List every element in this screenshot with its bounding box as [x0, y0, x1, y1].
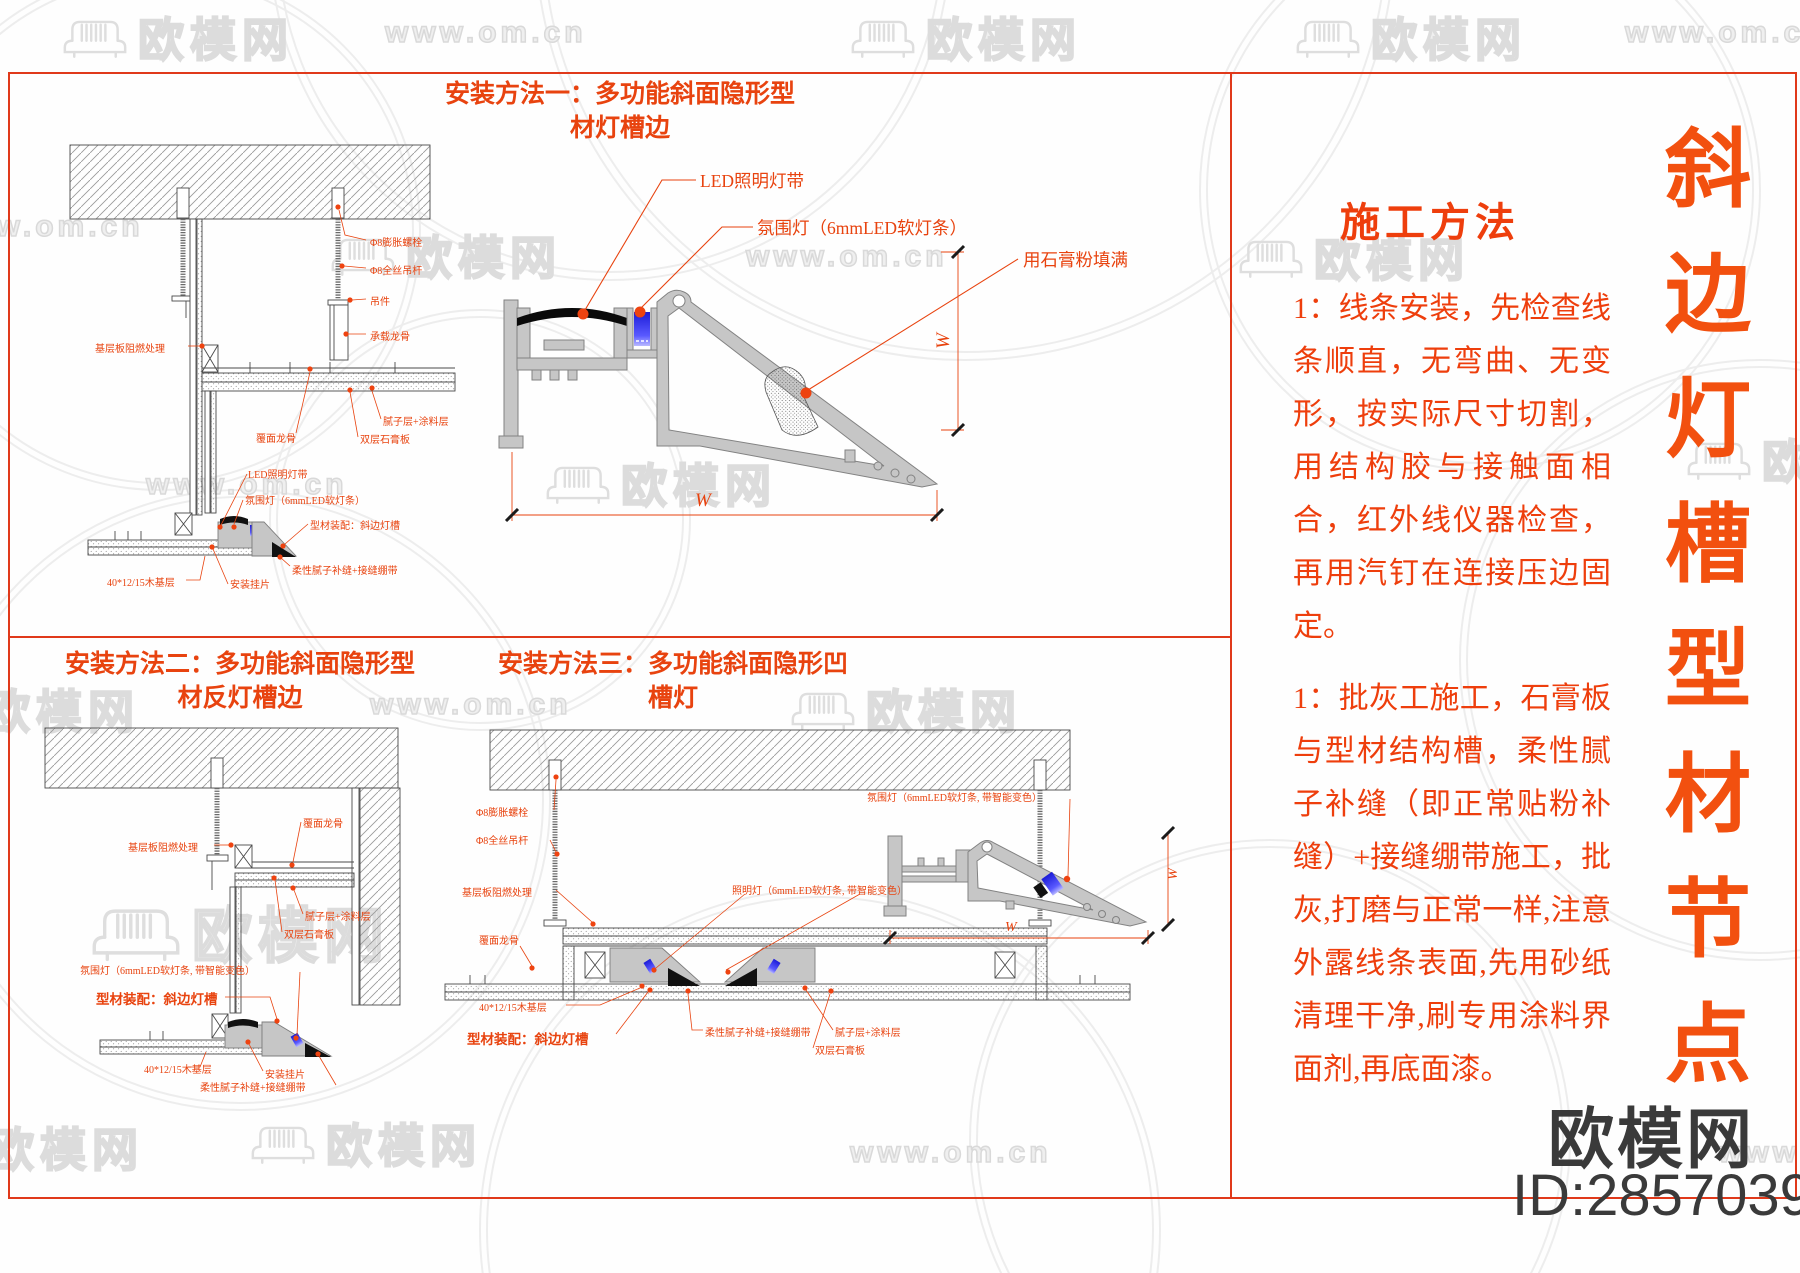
- construction-step-1: 1：线条安装，先检查线条顺直，无弯曲、无变形，按实际尺寸切割，用结构胶与接触面相…: [1293, 282, 1611, 653]
- drawing-sheet: 欧模网 www.om.cn 欧模网 欧模网 www.om.cn www.om.c…: [0, 0, 1800, 1273]
- callout-ambient-light: 氛围灯（6mmLED软灯条）: [757, 215, 967, 240]
- detail-label: 氛围灯（6mmLED软灯条, 带智能变色）: [867, 789, 1042, 804]
- model-id: ID:2857039: [1512, 1162, 1800, 1229]
- detail-label: 氛围灯（6mmLED软灯条）: [245, 492, 365, 507]
- detail-label: 覆面龙骨: [303, 815, 343, 830]
- method2-title-line1: 安装方法二：多功能斜面隐形型: [40, 648, 440, 682]
- detail-label: Φ8全丝吊杆: [370, 262, 422, 277]
- detail-label: 覆面龙骨: [256, 430, 296, 445]
- detail-label: 柔性腻子补缝+接缝绷带: [292, 562, 398, 577]
- profile-assembly-label: 型材装配：斜边灯槽: [96, 988, 218, 1008]
- detail-label: 安装挂片: [230, 576, 270, 591]
- method1-profile-section: [499, 290, 937, 487]
- detail-label: Φ8全丝吊杆: [476, 832, 528, 847]
- dimension-w-horizontal: W: [1005, 920, 1017, 936]
- detail-label: LED照明灯带: [248, 466, 307, 481]
- method3-title-line2: 槽灯: [473, 682, 873, 716]
- detail-label: 吊件: [370, 293, 390, 308]
- detail-label: 型材装配：斜边灯槽: [310, 517, 400, 532]
- detail-label: 腻子层+涂料层: [305, 908, 371, 923]
- detail-label: 腻子层+涂料层: [835, 1024, 901, 1039]
- detail-label: Φ8膨胀螺栓: [370, 234, 422, 249]
- detail-label: 双层石膏板: [360, 431, 410, 446]
- method3-title-line1: 安装方法三：多功能斜面隐形凹: [473, 648, 873, 682]
- method3-title: 安装方法三：多功能斜面隐形凹 槽灯: [473, 648, 873, 716]
- dimension-w-vertical: W: [1166, 868, 1182, 880]
- detail-label: 双层石膏板: [815, 1042, 865, 1057]
- method2-title: 安装方法二：多功能斜面隐形型 材反灯槽边: [40, 648, 440, 716]
- method1-title-line1: 安装方法一：多功能斜面隐形型: [400, 78, 840, 112]
- detail-label: 覆面龙骨: [479, 932, 519, 947]
- detail-label: 基层板阻燃处理: [462, 884, 532, 899]
- detail-label: 40*12/15木基层: [144, 1061, 212, 1076]
- dimension-w-horizontal: W: [695, 490, 711, 512]
- profile-assembly-label: 型材装配：斜边灯槽: [467, 1028, 589, 1048]
- detail-label: Φ8膨胀螺栓: [476, 804, 528, 819]
- detail-label: 腻子层+涂料层: [383, 413, 449, 428]
- detail-label: 柔性腻子补缝+接缝绷带: [200, 1079, 306, 1094]
- callout-led-strip: LED照明灯带: [700, 168, 804, 193]
- detail-label: 照明灯（6mmLED软灯条, 带智能变色）: [732, 882, 907, 897]
- detail-label: 氛围灯（6mmLED软灯条, 带智能变色）: [80, 962, 255, 977]
- detail-label: 柔性腻子补缝+接缝绷带: [705, 1024, 811, 1039]
- callout-gypsum-fill: 用石膏粉填满: [1023, 247, 1128, 272]
- detail-label: 40*12/15木基层: [107, 574, 175, 589]
- method3-inset-profile: [884, 836, 1146, 926]
- dimension-ticks: [506, 246, 1174, 944]
- construction-step-2: 1：批灰工施工，石膏板与型材结构槽，柔性腻子补缝（即正常贴粉补缝）+接缝绷带施工…: [1293, 672, 1611, 1096]
- method2-title-line2: 材反灯槽边: [40, 682, 440, 716]
- method1-title-line2: 材灯槽边: [400, 112, 840, 146]
- detail-label: 承载龙骨: [370, 328, 410, 343]
- construction-method-title: 施工方法: [1280, 190, 1580, 248]
- method1-title: 安装方法一：多功能斜面隐形型 材灯槽边: [400, 78, 840, 146]
- detail-label: 40*12/15木基层: [479, 999, 547, 1014]
- dimension-lines: [512, 252, 1168, 944]
- sheet-title-vertical: 斜 边 灯 槽 型 材 节 点: [1660, 108, 1756, 1108]
- dimension-w-vertical: W: [933, 333, 955, 349]
- detail-label: 基层板阻燃处理: [95, 340, 165, 355]
- detail-label: 基层板阻燃处理: [128, 839, 198, 854]
- detail-label: 双层石膏板: [284, 926, 334, 941]
